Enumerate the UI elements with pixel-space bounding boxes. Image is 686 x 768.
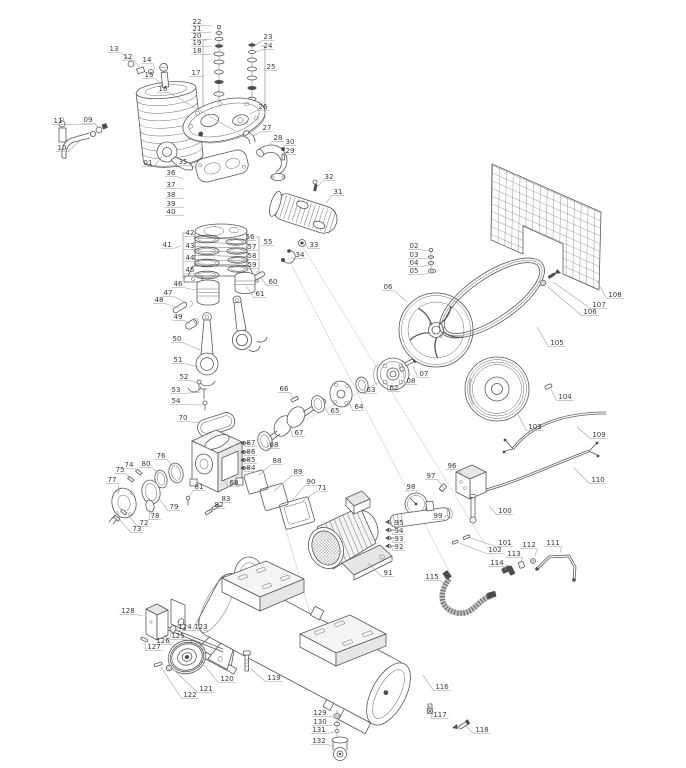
part-label-29: 29 — [286, 147, 295, 155]
part-label-94: 94 — [395, 527, 404, 535]
part-label-71: 71 — [318, 484, 327, 492]
fittings-112-113 — [518, 559, 535, 569]
part-label-65: 65 — [331, 407, 340, 415]
bolts-101-102 — [452, 535, 470, 545]
part-label-73: 73 — [133, 525, 142, 533]
flywheel-06 — [399, 293, 473, 367]
part-label-25: 25 — [267, 63, 276, 71]
part-label-42: 42 — [186, 229, 195, 237]
part-label-132: 132 — [312, 737, 325, 745]
part-label-50: 50 — [173, 335, 182, 343]
pressure-switch-96 — [456, 465, 486, 499]
part-label-28: 28 — [274, 134, 283, 142]
bolt-32 — [313, 180, 318, 191]
pin-47-48 — [172, 301, 192, 314]
part-label-121: 121 — [199, 685, 212, 693]
part-label-60: 60 — [269, 278, 278, 286]
part-label-111: 111 — [546, 539, 559, 547]
part-label-67: 67 — [295, 429, 304, 437]
leader-line-31 — [326, 196, 344, 203]
leader-line-89 — [274, 476, 304, 491]
part-label-52: 52 — [180, 373, 189, 381]
part-label-40: 40 — [167, 208, 176, 216]
part-label-57: 57 — [248, 243, 257, 251]
part-label-93: 93 — [395, 535, 404, 543]
part-label-24: 24 — [264, 42, 273, 50]
part-label-106: 106 — [583, 308, 597, 316]
part-label-99: 99 — [434, 512, 443, 520]
part-label-80: 80 — [142, 460, 151, 468]
part-label-77: 77 — [108, 476, 117, 484]
part-label-68: 68 — [270, 441, 279, 449]
bearing-plate-64 — [328, 379, 355, 409]
part-label-47: 47 — [164, 289, 173, 297]
leader-line-115 — [424, 581, 446, 584]
part-label-31: 31 — [334, 188, 343, 196]
caster-132 — [332, 737, 348, 761]
flywheel-bolt-stack-02-05 — [428, 248, 436, 273]
part-label-79: 79 — [170, 503, 179, 511]
bracket-17 — [203, 40, 207, 112]
part-label-56: 56 — [246, 233, 255, 241]
part-label-70: 70 — [179, 414, 188, 422]
part-label-128: 128 — [121, 607, 134, 615]
fitting-97 — [439, 483, 447, 492]
part-label-62: 62 — [390, 384, 399, 392]
part-label-124: 124 — [178, 623, 192, 631]
part-label-09: 09 — [84, 116, 93, 124]
part-label-119: 119 — [267, 674, 280, 682]
part-label-27: 27 — [263, 124, 272, 132]
plug-33 — [299, 240, 306, 247]
leader-line-50 — [171, 343, 200, 350]
power-cable-109 — [503, 413, 606, 453]
piston-46 — [197, 280, 219, 305]
bolts-29-30 — [281, 147, 285, 160]
key-66 — [291, 396, 299, 402]
ring-set-42-45 — [195, 235, 219, 279]
bushing-49 — [184, 317, 199, 330]
leader-line-51 — [172, 364, 199, 367]
part-label-95: 95 — [395, 519, 404, 527]
part-label-30: 30 — [286, 138, 295, 146]
part-label-13: 13 — [110, 45, 119, 53]
part-label-97: 97 — [427, 472, 436, 480]
fitting-100 — [470, 494, 476, 523]
part-label-105: 105 — [550, 339, 563, 347]
drain-stack-129-131 — [334, 710, 340, 738]
leader-line-97 — [425, 480, 442, 485]
part-label-21: 21 — [193, 25, 202, 33]
part-label-110: 110 — [591, 476, 604, 484]
leader-line-80 — [140, 468, 158, 473]
key-104 — [544, 384, 552, 390]
part-label-83: 83 — [222, 495, 231, 503]
part-label-14: 14 — [143, 56, 152, 64]
connecting-rod-right — [232, 296, 267, 351]
part-label-104: 104 — [558, 393, 572, 401]
part-label-86: 86 — [247, 448, 256, 456]
part-label-127: 127 — [147, 643, 160, 651]
part-label-66: 66 — [280, 385, 289, 393]
part-label-89: 89 — [294, 468, 303, 476]
part-label-36: 36 — [167, 169, 176, 177]
part-label-20: 20 — [193, 32, 202, 40]
part-label-113: 113 — [507, 550, 520, 558]
part-label-46: 46 — [174, 280, 183, 288]
part-label-114: 114 — [490, 559, 504, 567]
aftercooler-31 — [267, 190, 341, 237]
part-label-05: 05 — [410, 267, 419, 275]
part-label-04: 04 — [410, 259, 419, 267]
part-label-122: 122 — [183, 691, 196, 699]
part-label-100: 100 — [498, 507, 511, 515]
part-label-10: 10 — [58, 144, 67, 152]
part-label-69: 69 — [230, 479, 239, 487]
part-label-129: 129 — [313, 709, 326, 717]
part-label-49: 49 — [174, 313, 183, 321]
part-label-22: 22 — [193, 18, 202, 26]
part-label-38: 38 — [167, 191, 176, 199]
part-label-109: 109 — [592, 431, 605, 439]
part-label-64: 64 — [355, 403, 364, 411]
belt-guard-108 — [489, 156, 606, 298]
leader-line-66 — [278, 393, 294, 399]
leader-line-111 — [545, 547, 562, 553]
part-label-130: 130 — [313, 718, 326, 726]
part-label-35: 35 — [179, 158, 188, 166]
part-label-08: 08 — [407, 377, 416, 385]
leader-line-06 — [382, 291, 407, 302]
part-label-18: 18 — [193, 47, 202, 55]
part-label-76: 76 — [157, 452, 166, 460]
leader-line-28 — [268, 142, 284, 147]
leader-line-74 — [123, 469, 137, 473]
part-label-63: 63 — [367, 386, 376, 394]
leader-line-27 — [254, 132, 273, 136]
part-label-112: 112 — [522, 541, 535, 549]
part-label-07: 07 — [420, 370, 429, 378]
part-label-92: 92 — [395, 543, 404, 551]
part-label-37: 37 — [167, 181, 176, 189]
part-label-48: 48 — [155, 296, 164, 304]
leader-line-32 — [318, 181, 335, 186]
part-label-44: 44 — [186, 254, 195, 262]
part-label-32: 32 — [325, 173, 334, 181]
part-label-88: 88 — [273, 457, 282, 465]
part-label-59: 59 — [248, 261, 257, 269]
part-label-06: 06 — [384, 283, 393, 291]
part-label-81: 81 — [195, 483, 204, 491]
diagram-page: 0102030405060708091011121314151617181920… — [0, 0, 686, 768]
wheel-120 — [164, 635, 210, 678]
power-cable-110 — [473, 442, 599, 493]
part-label-108: 108 — [608, 291, 621, 299]
braided-hose-115 — [442, 570, 496, 613]
part-label-61: 61 — [256, 290, 265, 298]
part-label-23: 23 — [264, 33, 273, 41]
part-label-54: 54 — [172, 397, 181, 405]
part-label-55: 55 — [264, 238, 273, 246]
leader-line-81 — [189, 491, 205, 497]
part-label-03: 03 — [410, 251, 419, 259]
part-label-51: 51 — [174, 356, 183, 364]
part-label-123: 123 — [194, 623, 207, 631]
part-label-84: 84 — [247, 464, 256, 472]
part-label-53: 53 — [172, 386, 181, 394]
part-label-96: 96 — [448, 462, 457, 470]
part-label-102: 102 — [488, 546, 501, 554]
part-label-118: 118 — [475, 726, 488, 734]
part-label-41: 41 — [163, 241, 172, 249]
part-label-117: 117 — [433, 711, 446, 719]
part-label-78: 78 — [151, 512, 160, 520]
part-label-125: 125 — [171, 632, 184, 640]
part-label-107: 107 — [592, 301, 605, 309]
part-label-115: 115 — [425, 573, 438, 581]
leader-line-47 — [162, 297, 187, 303]
part-label-85: 85 — [247, 456, 256, 464]
bolt-127 — [141, 637, 148, 642]
part-label-45: 45 — [186, 266, 195, 274]
part-label-75: 75 — [116, 466, 125, 474]
part-label-98: 98 — [407, 483, 416, 491]
leader-line-112 — [521, 549, 538, 556]
leader-line-76 — [155, 460, 173, 466]
part-label-43: 43 — [186, 242, 195, 250]
part-label-15: 15 — [145, 71, 154, 79]
unloader-pipe-111 — [535, 556, 576, 582]
part-label-16: 16 — [159, 85, 168, 93]
part-label-87: 87 — [247, 439, 256, 447]
piston-61 — [235, 272, 255, 293]
part-label-120: 120 — [220, 675, 233, 683]
part-label-33: 33 — [310, 241, 319, 249]
part-label-01: 01 — [144, 159, 153, 167]
exploded-parts-diagram: 0102030405060708091011121314151617181920… — [0, 0, 686, 768]
part-label-26: 26 — [259, 103, 268, 111]
part-label-19: 19 — [193, 39, 202, 47]
part-label-39: 39 — [167, 200, 176, 208]
part-label-116: 116 — [435, 683, 449, 691]
part-label-17: 17 — [192, 69, 201, 77]
box-128 — [146, 604, 168, 640]
part-label-74: 74 — [125, 461, 134, 469]
motor-91 — [279, 491, 392, 580]
part-label-90: 90 — [307, 478, 316, 486]
cover-gaskets-88-90 — [244, 470, 315, 530]
part-label-58: 58 — [248, 252, 257, 260]
drain-cock-117 — [427, 704, 433, 714]
part-label-131: 131 — [312, 726, 325, 734]
part-label-34: 34 — [296, 251, 305, 259]
leader-line-88 — [259, 465, 283, 475]
part-label-103: 103 — [528, 423, 541, 431]
stud-119 — [244, 651, 251, 671]
part-label-12: 12 — [124, 53, 133, 61]
part-label-02: 02 — [410, 242, 419, 250]
leader-line-71 — [303, 492, 328, 501]
pipe-34 — [281, 249, 295, 263]
motor-pulley-103 — [465, 357, 529, 421]
head-fitting-27 — [242, 130, 255, 144]
part-label-91: 91 — [384, 569, 393, 577]
part-label-11: 11 — [54, 117, 63, 125]
